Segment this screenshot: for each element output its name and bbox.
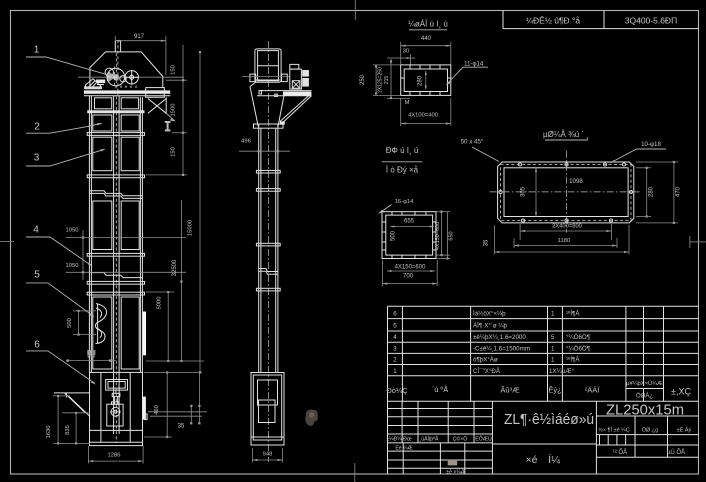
svg-text:150: 150 [171, 65, 177, 75]
svg-text:M: M [405, 100, 410, 106]
svg-text:1630: 1630 [46, 426, 52, 439]
svg-text:µÚ ÕÅ: µÚ ÕÅ [667, 449, 685, 456]
svg-text:ÈÕÆÚ: ÈÕÆÚ [475, 436, 492, 443]
svg-text:¹ºÍ¶Å: ¹ºÍ¶Å [566, 357, 580, 364]
svg-text:835: 835 [65, 425, 71, 435]
svg-text:50 x 45°: 50 x 45° [461, 139, 484, 146]
svg-text:±ê ×¼Æ: ±ê ×¼Æ [446, 469, 466, 475]
svg-text:Ï ò Ðý ×å: Ï ò Ðý ×å [386, 166, 419, 175]
svg-text:1X¼µÆ°: 1X¼µÆ° [549, 368, 574, 375]
svg-text:460: 460 [154, 405, 160, 415]
svg-text:32500: 32500 [172, 259, 178, 276]
svg-text:Ðò¼Ç: Ðò¼Ç [386, 386, 408, 395]
svg-text:ô¶þX°Àø: ô¶þX°Àø [473, 357, 498, 364]
svg-text:3Q400-5.6ÐΠ: 3Q400-5.6ÐΠ [625, 16, 677, 26]
svg-text:´ú ºÅ: ´ú ºÅ [432, 385, 449, 394]
svg-text:¼ÐÊ½ û¶Ð °å: ¼ÐÊ½ û¶Ð °å [526, 16, 581, 26]
svg-text:-C±ê¼¸1.6=1500mm: -C±ê¼¸1.6=1500mm [473, 346, 530, 353]
svg-text:3: 3 [34, 153, 40, 164]
svg-text:Éè ¼Æ: Éè ¼Æ [395, 444, 412, 451]
svg-text:4X150=600: 4X150=600 [435, 222, 441, 250]
svg-text:1: 1 [551, 310, 555, 317]
svg-text:3: 3 [393, 346, 397, 353]
svg-text:2X400=800: 2X400=800 [552, 224, 582, 230]
svg-text:4: 4 [393, 334, 397, 341]
svg-text:1: 1 [393, 368, 397, 375]
svg-text:5: 5 [551, 334, 555, 341]
svg-text:4: 4 [33, 225, 39, 236]
svg-text:Í¼: Í¼ [548, 453, 560, 466]
svg-text:1: 1 [551, 357, 555, 364]
svg-text:16-φ14: 16-φ14 [395, 199, 414, 205]
svg-text:CÍ¯"X°ÐÅ: CÍ¯"X°ÐÅ [473, 368, 501, 375]
svg-text:280: 280 [418, 75, 424, 86]
svg-text:¸üÄÎļþºÅ: ¸üÄÎļþºÅ [420, 436, 439, 443]
svg-text:496: 496 [241, 139, 251, 145]
svg-text:±ê¼þX¼¸1.6=2000: ±ê¼þX¼¸1.6=2000 [473, 334, 526, 341]
svg-text:5: 5 [34, 270, 40, 281]
svg-text:5000: 5000 [157, 297, 163, 310]
svg-text:1500: 1500 [171, 104, 177, 117]
svg-text:1050: 1050 [66, 228, 79, 234]
svg-text:500: 500 [67, 318, 73, 328]
svg-text:4X150=600: 4X150=600 [395, 265, 427, 271]
svg-text:¹ºÍ¶Å: ¹ºÍ¶Å [566, 310, 580, 317]
svg-text:948: 948 [263, 452, 273, 458]
svg-text:10-φ18: 10-φ18 [641, 141, 661, 148]
svg-text:ÖØÁ¿: ÖØÁ¿ [636, 393, 653, 400]
svg-text:1050: 1050 [66, 263, 79, 269]
svg-text:±,XÇ: ±,XÇ [671, 387, 691, 397]
svg-text:±È Àý: ±È Àý [677, 427, 692, 434]
svg-text:Ìá½ôX°×¼þ: Ìá½ôX°×¼þ [473, 310, 506, 317]
svg-text:655: 655 [404, 219, 415, 225]
svg-text:150: 150 [171, 147, 177, 157]
svg-text:×é: ×é [526, 454, 538, 466]
svg-text:6: 6 [393, 310, 397, 317]
svg-text:700: 700 [403, 274, 414, 280]
svg-text:Êý¿: Êý¿ [548, 386, 562, 395]
svg-text:15000: 15000 [188, 220, 194, 236]
svg-text:µ¥¼þX×Ü¼Æ: µ¥¼þX×Ü¼Æ [626, 380, 663, 387]
svg-text:440: 440 [421, 36, 432, 42]
svg-text:²ÄÁÏ: ²ÄÁÏ [585, 386, 601, 395]
svg-text:470: 470 [676, 186, 682, 197]
svg-text:30: 30 [403, 49, 409, 55]
svg-text:1180: 1180 [558, 238, 570, 244]
svg-text:35: 35 [178, 424, 185, 430]
svg-text:2: 2 [393, 357, 397, 364]
svg-text:5: 5 [393, 323, 397, 330]
svg-text:250: 250 [360, 74, 366, 85]
svg-text:Ãû³Æ: Ãû³Æ [500, 386, 520, 395]
svg-text:1: 1 [551, 346, 555, 353]
svg-text:500: 500 [391, 230, 397, 241]
svg-text:2X125=250: 2X125=250 [378, 67, 384, 93]
svg-text:½× ¶Î ±ê ¼Ç: ½× ¶Î ±ê ¼Ç [598, 427, 630, 434]
svg-text:ÐΦ ú Ι¸ ú: ÐΦ ú Ι¸ ú [386, 146, 419, 155]
svg-text:°¼Ö6Ö¶: °¼Ö6Ö¶ [566, 346, 591, 353]
svg-text:650: 650 [449, 231, 455, 240]
svg-text:1098: 1098 [569, 178, 583, 185]
svg-text:µØ¼Å ¾ú ´ ¸: µØ¼Å ¾ú ´ ¸ [543, 130, 589, 139]
svg-text:1286: 1286 [108, 453, 121, 459]
svg-text:2: 2 [34, 122, 40, 133]
svg-text:4X100=400: 4X100=400 [408, 113, 438, 119]
svg-text:11-φ14: 11-φ14 [464, 61, 484, 68]
svg-text:ZL¶·ê½ìáéø»ú: ZL¶·ê½ìáéø»ú [504, 412, 594, 428]
svg-text:1: 1 [34, 45, 40, 56]
svg-text:280: 280 [649, 186, 655, 197]
svg-text:917: 917 [134, 34, 145, 40]
svg-text:305: 305 [521, 186, 527, 197]
svg-text:Ç©×Ö: Ç©×Ö [453, 436, 468, 443]
svg-text:¹² ÕÅ: ¹² ÕÅ [613, 449, 627, 456]
svg-text:±¼Ð¼ Ðœ: ±¼Ð¼ Ðœ [386, 437, 411, 443]
svg-text:ÖØ ¿g: ÖØ ¿g [642, 427, 659, 434]
svg-text:215: 215 [384, 76, 390, 85]
svg-text:6: 6 [34, 340, 40, 351]
svg-text:°¼Ö6Ö¶: °¼Ö6Ö¶ [566, 334, 591, 341]
svg-text:¼øÁÏ ú Ι¸ ú: ¼øÁÏ ú Ι¸ ú [408, 20, 448, 29]
svg-text:35: 35 [484, 239, 490, 246]
svg-text:ÁÏ¶·X°´ø ¼þ: ÁÏ¶·X°´ø ¼þ [473, 323, 508, 330]
